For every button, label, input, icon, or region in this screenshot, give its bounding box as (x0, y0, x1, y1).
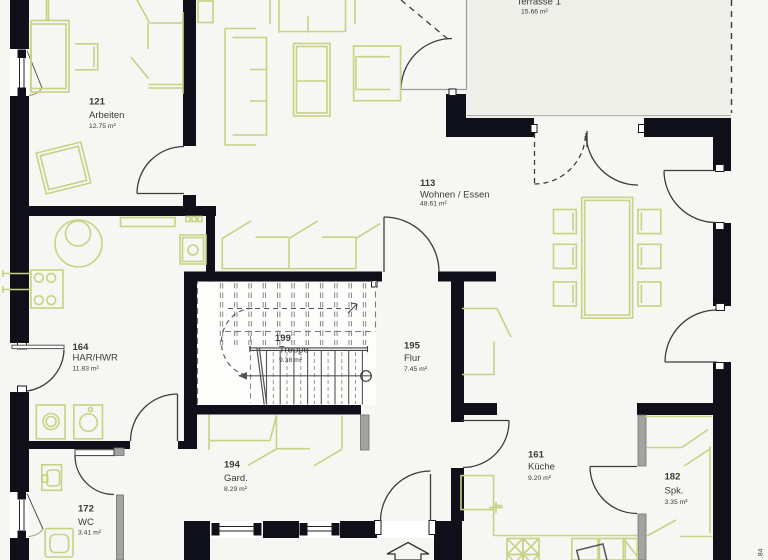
svg-text:11.83 m²: 11.83 m² (73, 366, 100, 373)
svg-text:199: 199 (275, 333, 291, 344)
svg-text:Terrasse 1: Terrasse 1 (517, 0, 561, 8)
svg-text:194: 194 (224, 460, 241, 471)
svg-text:Wohnen / Essen: Wohnen / Essen (420, 190, 490, 201)
svg-text:113: 113 (420, 178, 435, 189)
svg-text:182: 182 (665, 472, 681, 483)
svg-text:Spk.: Spk. (665, 486, 684, 497)
svg-text:7.45 m²: 7.45 m² (404, 366, 428, 373)
svg-text:9.20 m²: 9.20 m² (528, 475, 552, 482)
svg-text:Gard.: Gard. (224, 473, 248, 484)
svg-text:Arbeiten: Arbeiten (89, 110, 124, 121)
svg-text:8.29 m²: 8.29 m² (224, 486, 248, 493)
svg-text:.84: .84 (758, 548, 765, 558)
svg-text:3.35 m²: 3.35 m² (665, 499, 689, 506)
svg-text:121: 121 (89, 97, 106, 108)
svg-text:Flur: Flur (404, 353, 420, 364)
svg-text:Treppe: Treppe (279, 345, 309, 356)
svg-text:HAR/HWR: HAR/HWR (73, 353, 119, 364)
svg-text:WC: WC (78, 517, 94, 528)
svg-text:3.41 m²: 3.41 m² (78, 530, 102, 537)
svg-text:164: 164 (73, 342, 90, 353)
svg-text:Küche: Küche (528, 462, 555, 473)
svg-text:48.61 m²: 48.61 m² (420, 201, 448, 208)
svg-text:161: 161 (528, 450, 545, 461)
svg-text:15.66 m²: 15.66 m² (521, 9, 549, 16)
svg-text:195: 195 (404, 341, 421, 352)
svg-text:9.38 m²: 9.38 m² (279, 357, 303, 364)
svg-text:12.75 m²: 12.75 m² (89, 123, 117, 130)
svg-text:172: 172 (78, 504, 94, 515)
